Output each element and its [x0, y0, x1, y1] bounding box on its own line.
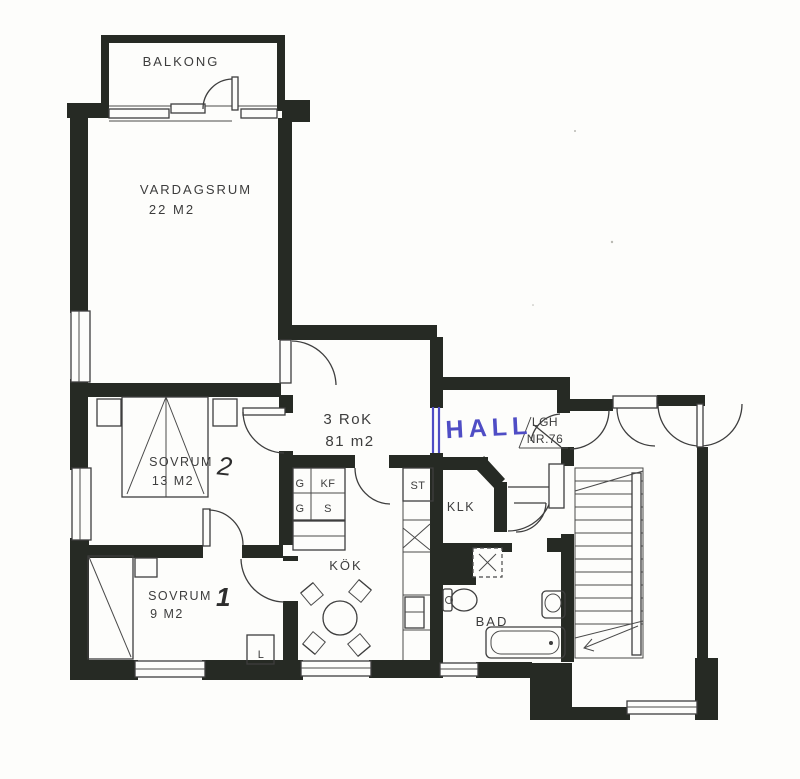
balcony-label: BALKONG: [143, 54, 220, 69]
bath-label: BAD: [476, 614, 509, 629]
tall-cabinet-column: [403, 468, 433, 660]
plan-title: 3 RoK: [323, 411, 372, 428]
toilet: [443, 589, 477, 611]
window-kitchen-bottom: [301, 661, 371, 676]
bedroom2-number: 2: [215, 450, 234, 482]
chairs: [301, 580, 372, 657]
paper-specks: [532, 130, 613, 306]
balcony-window-band: [109, 104, 277, 121]
living-room-label: VARDAGSRUM: [140, 182, 252, 197]
closet-and-bath-doors: [508, 487, 553, 532]
bedroom2-label: SOVRUM: [149, 455, 213, 469]
floor-plan-page: BALKONG VARDAGSRUM 22 M2 3 RoK 81 m2 HAL…: [0, 0, 800, 779]
fridge-symbol: [403, 524, 430, 550]
stair-direction-arrow: [584, 626, 638, 651]
living-room-area: 22 M2: [149, 202, 195, 217]
pantry-label: ST: [410, 480, 425, 492]
plan-area: 81 m2: [325, 433, 374, 450]
nightstand: [135, 558, 157, 577]
apartment-tag-line1: LGH: [532, 415, 558, 429]
stairwell-entrance-door: [658, 404, 742, 447]
bedroom1-area: 9 M2: [150, 607, 184, 621]
balcony-door: [203, 77, 238, 110]
bedroom2-area: 13 M2: [152, 474, 194, 488]
landing-door-left: [570, 410, 609, 449]
hall-label-handwritten: HALL: [445, 412, 533, 444]
kitchen-door: [355, 468, 390, 504]
apartment-tag-line2: NR.76: [527, 432, 564, 446]
landing-door-middle: [613, 396, 657, 446]
floor-plan-drawing: BALKONG VARDAGSRUM 22 M2 3 RoK 81 m2 HAL…: [0, 0, 800, 779]
blue-pen-marks: [433, 407, 439, 453]
dining-table: [323, 601, 357, 635]
bedroom1-label: SOVRUM: [148, 589, 212, 603]
window-living-left: [71, 311, 90, 382]
bedroom2-bedroom1-door: [203, 509, 243, 546]
kitchen-label: KÖK: [329, 558, 362, 573]
counter: [293, 521, 345, 550]
bedroom1-door: [241, 559, 284, 602]
fridge-label: KF: [320, 478, 335, 490]
bathtub: [486, 627, 565, 658]
window-bath-bottom: [440, 663, 478, 676]
nightstand-left: [97, 399, 121, 426]
closet-label: KLK: [447, 500, 475, 514]
shaft: [549, 464, 564, 508]
linen-cabinet-label: L: [258, 649, 265, 661]
kitchen-fixtures: [293, 468, 433, 660]
nightstand-right: [213, 399, 237, 426]
washer-position: [473, 548, 502, 577]
window-bedroom2-left: [72, 468, 91, 540]
bedroom1-number: 1: [216, 582, 230, 612]
cleaning-cabinet-label: S: [324, 503, 332, 515]
window-bedroom1-bottom: [135, 661, 205, 677]
bedroom2-door: [243, 408, 285, 453]
window-stairwell-bottom: [627, 701, 697, 714]
wardrobe-bottom-label: G: [295, 503, 304, 515]
wardrobe-top-label: G: [295, 478, 304, 490]
single-bed: [88, 556, 133, 659]
living-to-corridor-door: [280, 340, 336, 385]
